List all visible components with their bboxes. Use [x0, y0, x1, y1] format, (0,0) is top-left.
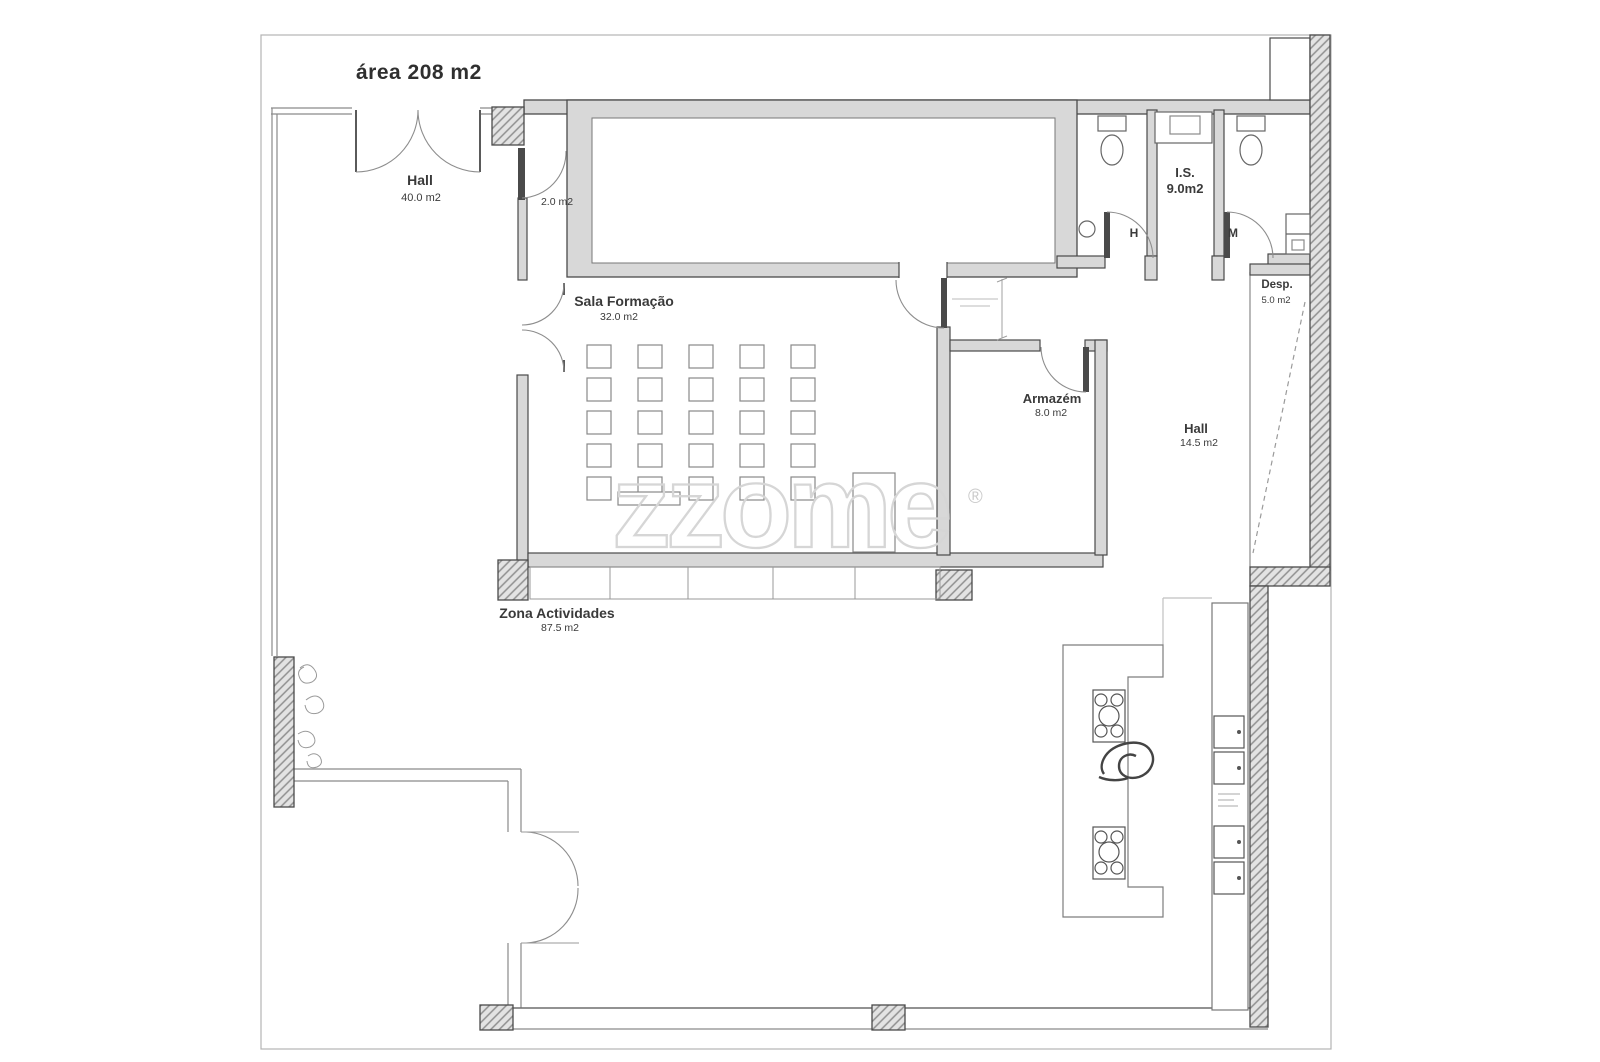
dimension-marks [952, 278, 1007, 340]
floor-plan-drawing [0, 0, 1600, 1062]
chair-grid [587, 345, 895, 552]
bench-band [530, 567, 940, 599]
room-area-hall-entrance: 40.0 m2 [401, 193, 441, 205]
room-label-despensa: Desp. [1261, 279, 1292, 291]
room-area-is: 9.0m2 [1167, 182, 1204, 196]
room-label-is: I.S. [1175, 166, 1195, 180]
floor-plan-page: área 208 m2 Hall 40.0 m2 2.0 m2 Sala For… [0, 0, 1600, 1062]
sanitary-walls [1057, 38, 1310, 280]
room-label-sala-formacao: Sala Formação [574, 294, 674, 309]
room-area-armazem: 8.0 m2 [1035, 408, 1067, 419]
plan-title: área 208 m2 [356, 62, 482, 84]
wc-label-men: H [1130, 227, 1139, 240]
despensa-diagonal [1253, 302, 1305, 553]
room-area-hall-back: 14.5 m2 [1180, 438, 1218, 449]
room-area-despensa: 5.0 m2 [1261, 296, 1290, 306]
room-label-armazem: Armazém [1023, 392, 1082, 406]
room-area-vestibule: 2.0 m2 [541, 197, 573, 208]
room-label-hall-back: Hall [1184, 422, 1208, 436]
kitchen-cabinets [1212, 603, 1248, 1010]
wc-label-women: M [1228, 227, 1238, 240]
room-label-hall-entrance: Hall [407, 173, 433, 188]
room-area-sala-formacao: 32.0 m2 [600, 312, 638, 323]
room-area-zona-actividades: 87.5 m2 [541, 623, 579, 634]
plant-scribbles [298, 665, 324, 768]
room-label-zona-actividades: Zona Actividades [499, 606, 614, 621]
